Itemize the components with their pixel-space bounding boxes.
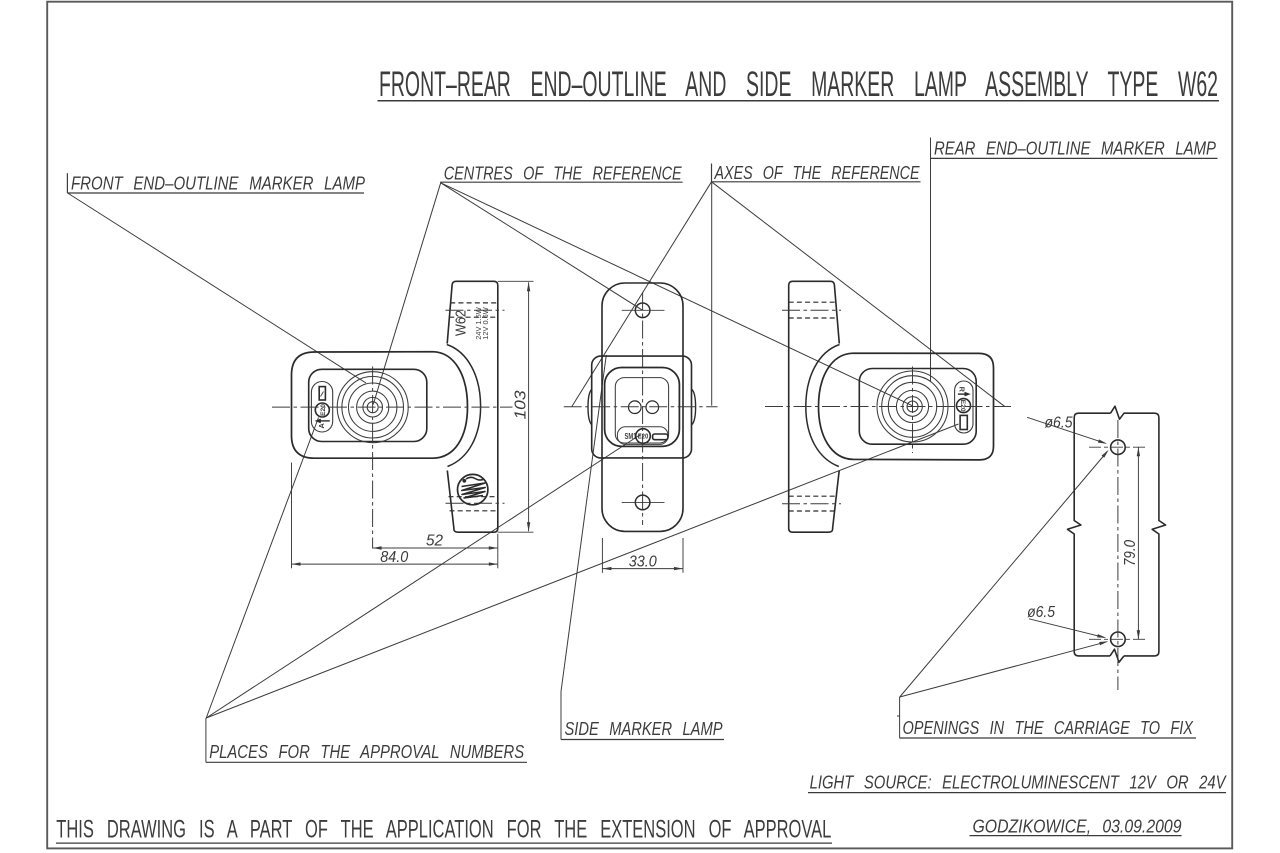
svg-text:12V 0.6W: 12V 0.6W bbox=[481, 307, 490, 339]
svg-text:33.0: 33.0 bbox=[629, 553, 657, 570]
svg-text:OPENINGS IN THE CARRIAGE TO FI: OPENINGS IN THE CARRIAGE TO FIX bbox=[903, 717, 1194, 738]
svg-text:LIGHT SOURCE: ELECTROLUMINESC: LIGHT SOURCE: ELECTROLUMINESCENT 12V OR … bbox=[810, 771, 1227, 792]
svg-text:84.0: 84.0 bbox=[380, 549, 408, 566]
svg-text:79.0: 79.0 bbox=[1122, 540, 1139, 566]
svg-text:SM1: SM1 bbox=[625, 431, 637, 441]
svg-text:AXES OF THE REFERENCE: AXES OF THE REFERENCE bbox=[714, 162, 920, 183]
svg-text:FRONT END–OUTLINE MARKER LAMP: FRONT END–OUTLINE MARKER LAMP bbox=[71, 173, 366, 194]
svg-text:GODZIKOWICE, 03.09.2009: GODZIKOWICE, 03.09.2009 bbox=[973, 816, 1182, 837]
svg-text:REAR END–OUTLINE MARKER LAMP: REAR END–OUTLINE MARKER LAMP bbox=[934, 138, 1217, 159]
svg-text:R: R bbox=[957, 387, 966, 393]
svg-text:ø6.5: ø6.5 bbox=[1027, 604, 1055, 621]
svg-text:THIS DRAWING IS A PART OF THE: THIS DRAWING IS A PART OF THE APPLICATIO… bbox=[56, 816, 831, 844]
svg-text:ø6.5: ø6.5 bbox=[1045, 414, 1073, 431]
svg-text:52: 52 bbox=[426, 533, 443, 550]
svg-text:FRONT–REAR END–OUTLINE AND SID: FRONT–REAR END–OUTLINE AND SIDE MARKER L… bbox=[379, 64, 1218, 104]
svg-text:CENTRES OF THE REFERENCE: CENTRES OF THE REFERENCE bbox=[444, 162, 683, 183]
svg-text:A: A bbox=[317, 422, 326, 428]
svg-text:SIDE MARKER LAMP: SIDE MARKER LAMP bbox=[565, 718, 724, 739]
svg-text:PLACES FOR THE APPROVAL NUMBER: PLACES FOR THE APPROVAL NUMBERS bbox=[209, 741, 525, 762]
svg-text:103: 103 bbox=[512, 390, 529, 420]
svg-text:E20: E20 bbox=[959, 400, 966, 412]
svg-text:E20: E20 bbox=[320, 404, 327, 416]
svg-text:W62: W62 bbox=[453, 310, 469, 336]
